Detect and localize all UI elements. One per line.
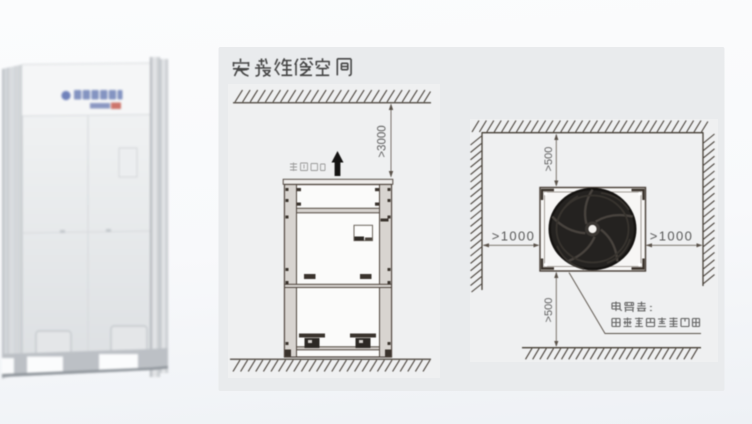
svg-text:>500: >500 [543, 147, 555, 172]
svg-text:>1000: >1000 [492, 229, 536, 244]
svg-text:>1000: >1000 [650, 229, 694, 244]
svg-text:>3000: >3000 [377, 125, 389, 157]
svg-text:>500: >500 [543, 298, 555, 323]
